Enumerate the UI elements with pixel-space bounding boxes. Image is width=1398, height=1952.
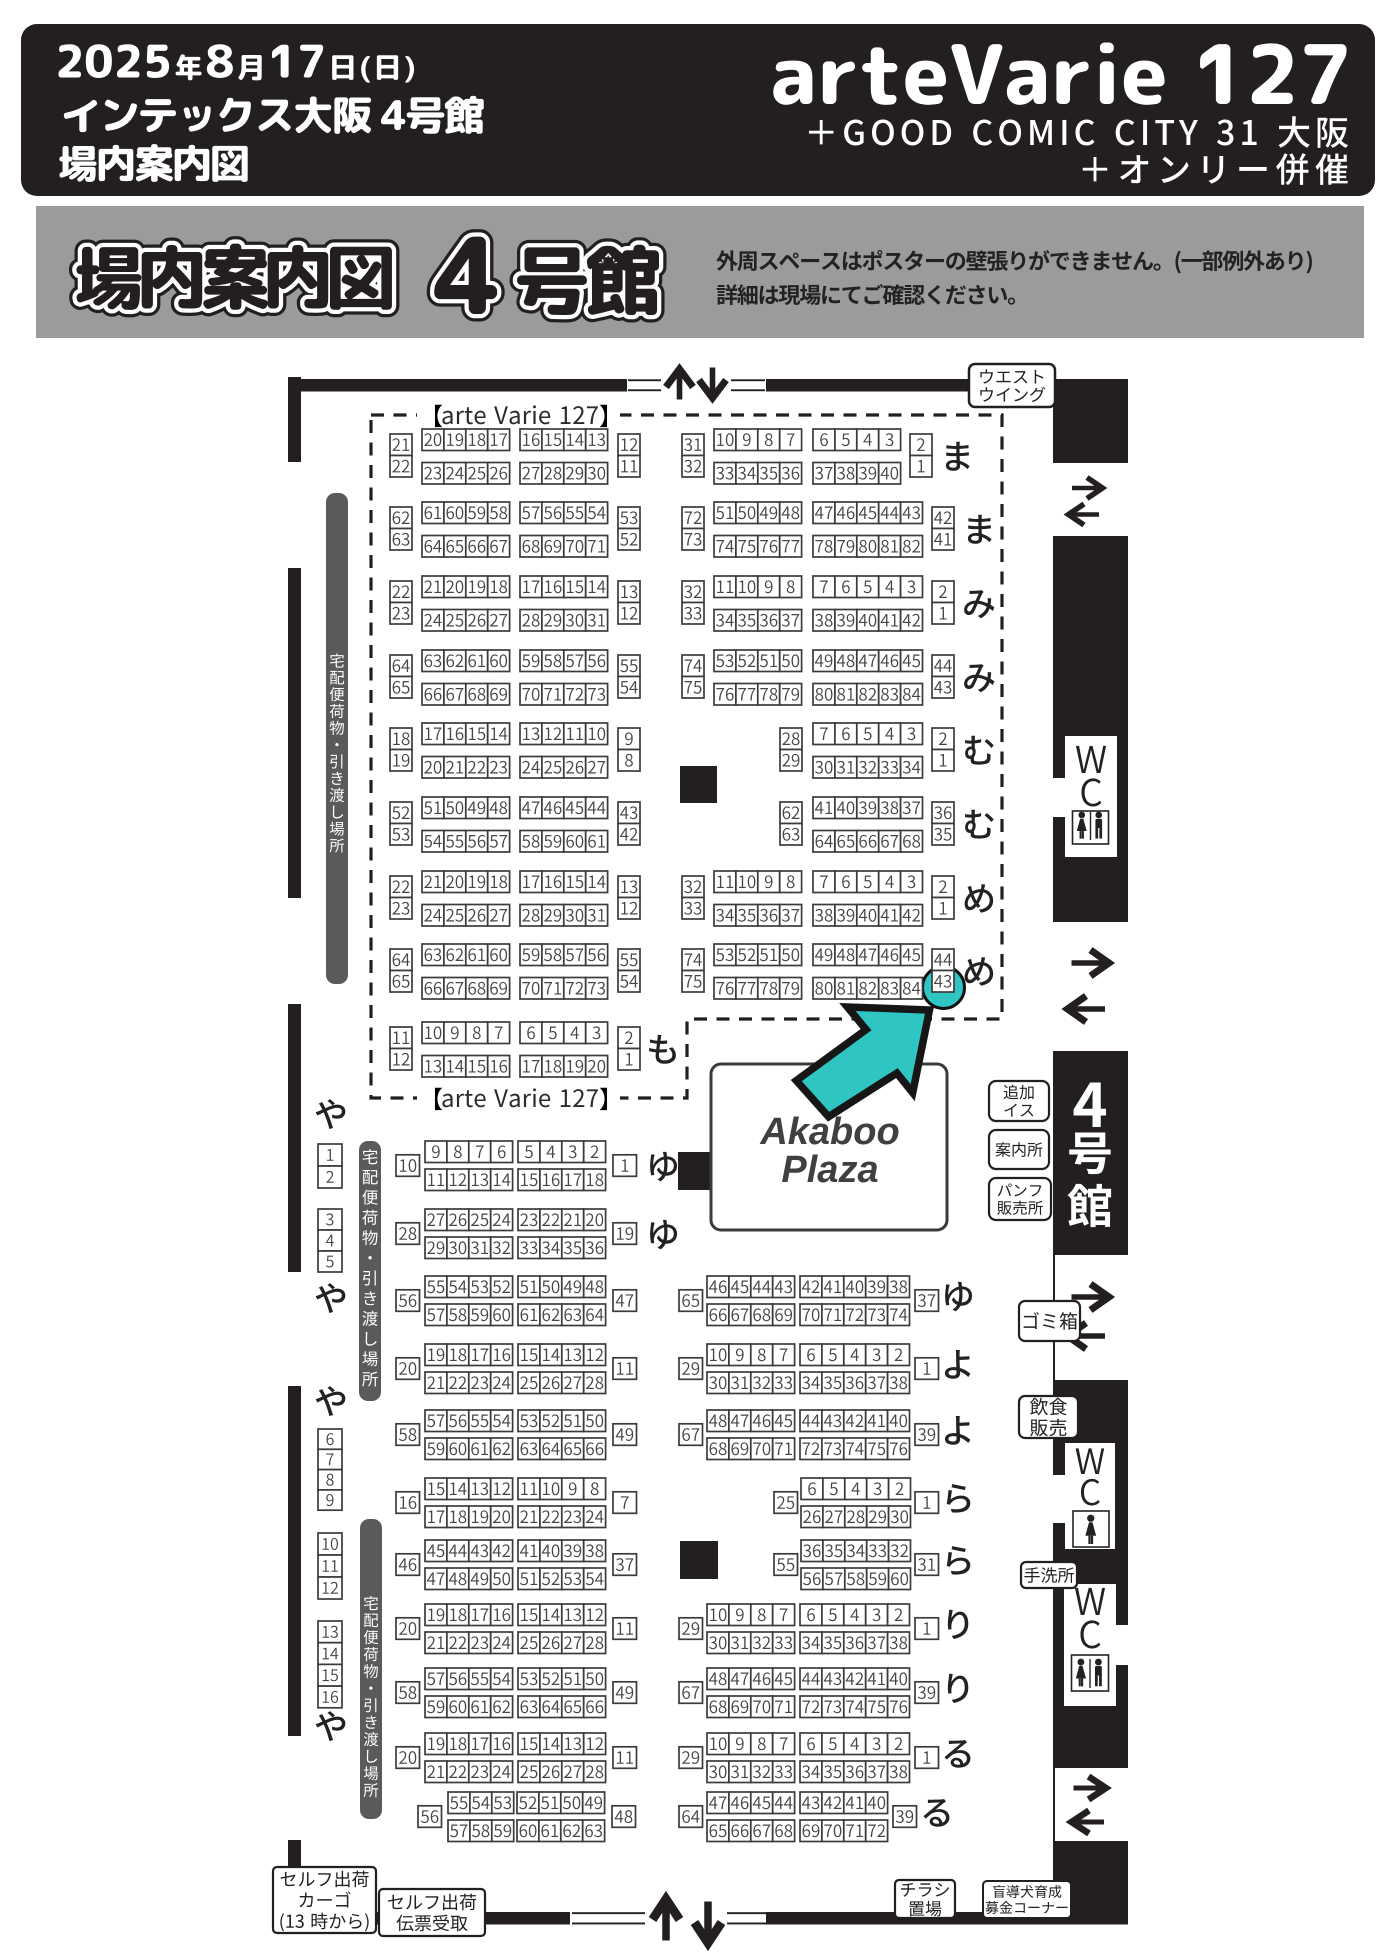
svg-text:Plaza: Plaza [781,1149,878,1191]
